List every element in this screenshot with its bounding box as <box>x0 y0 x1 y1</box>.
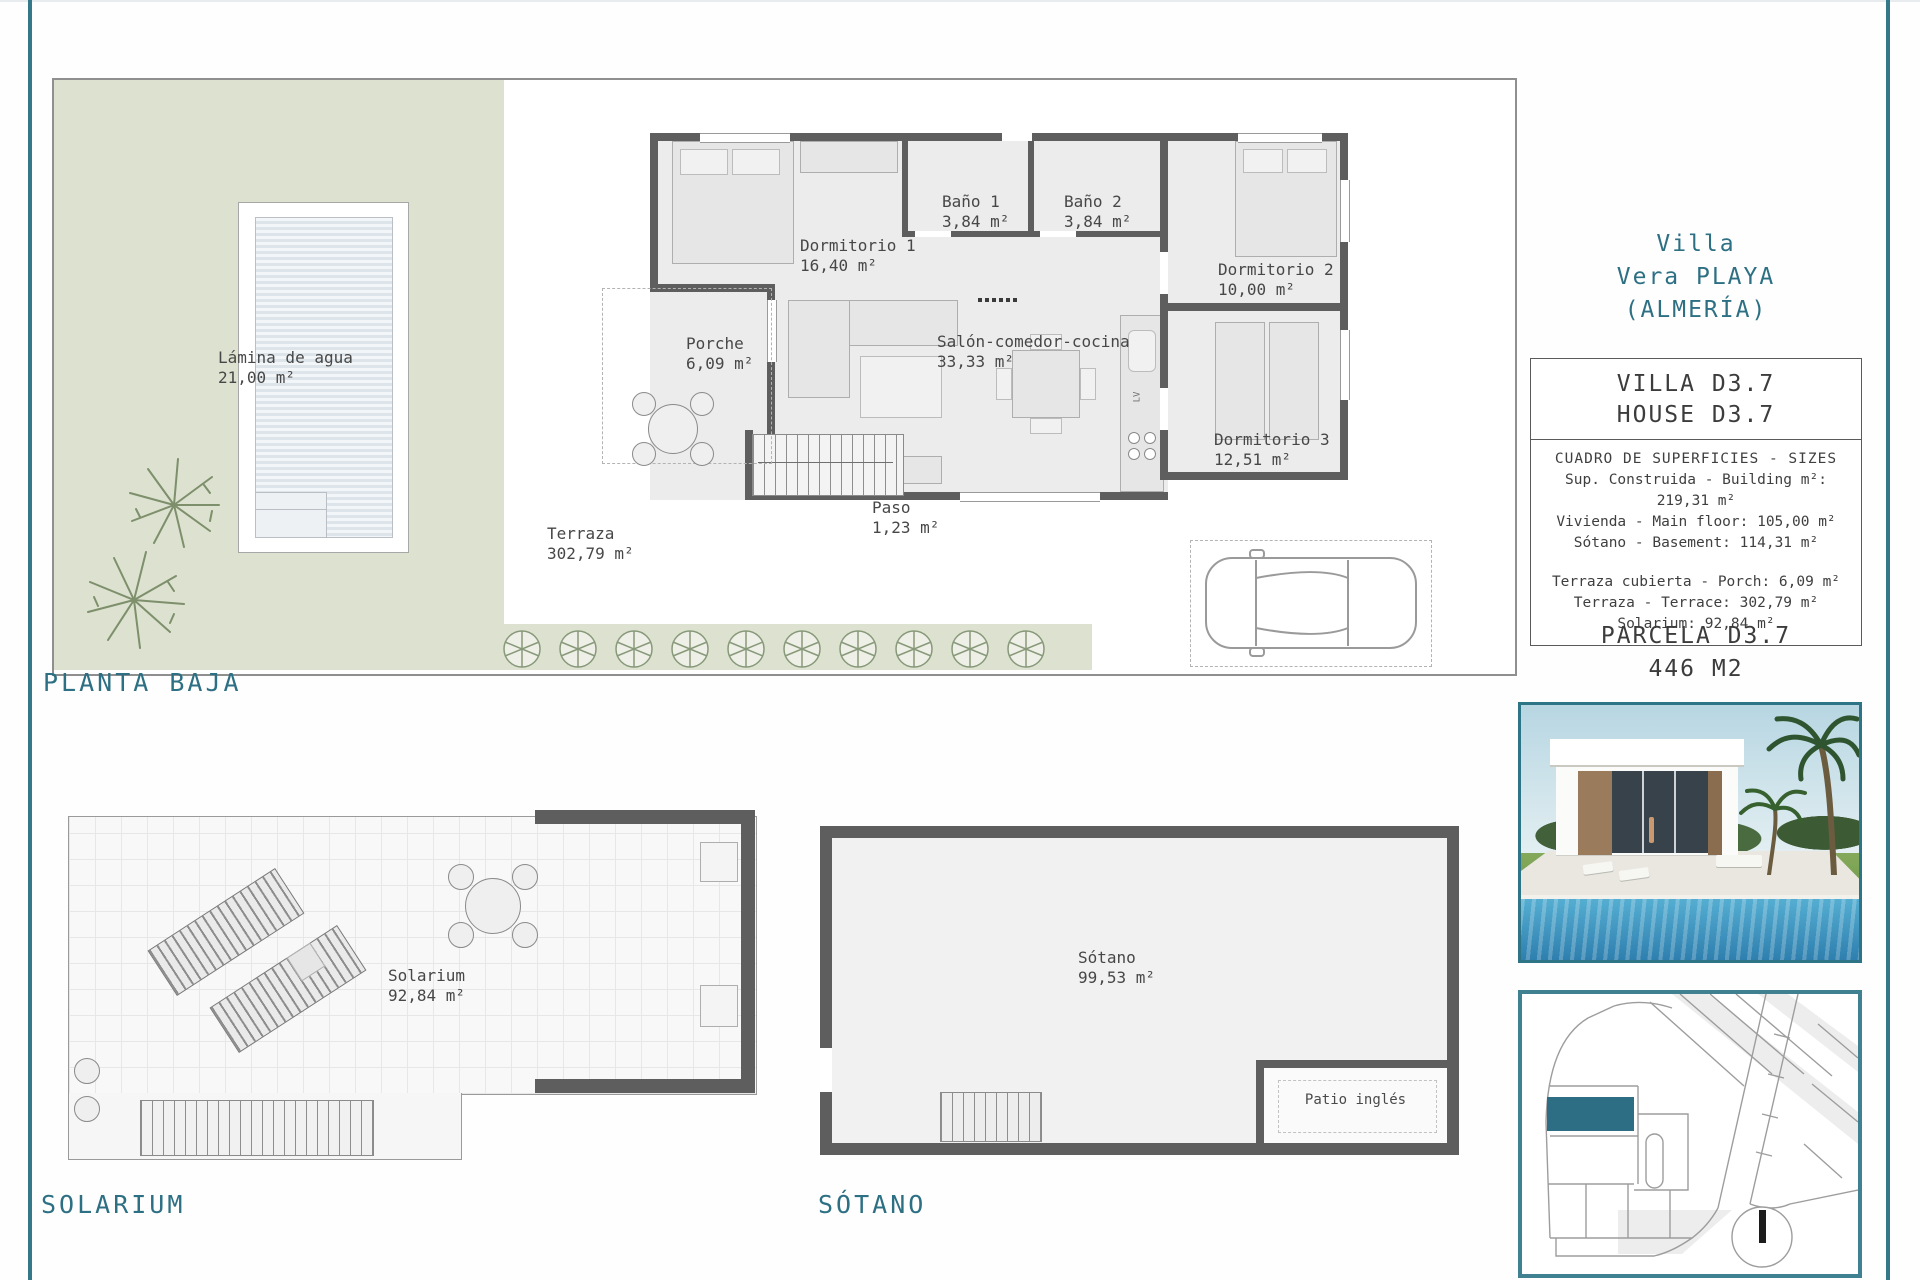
planta-baja-title: PLANTA BAJA <box>43 668 242 697</box>
surface-table-header: CUADRO DE SUPERFICIES - SIZES <box>1535 449 1857 470</box>
room-label-bano1: Baño 1 3,84 m² <box>942 192 1009 232</box>
solarium-chair <box>448 922 474 948</box>
pillow <box>680 149 728 175</box>
stairs <box>752 434 904 496</box>
room-label-paso: Paso 1,23 m² <box>872 498 939 538</box>
room-area: 3,84 m² <box>1064 212 1131 232</box>
room-area: 1,23 m² <box>872 518 939 538</box>
villa-title-line: Villa <box>1530 228 1862 261</box>
wall <box>1160 303 1348 311</box>
villa-title-line: (ALMERÍA) <box>1530 294 1862 327</box>
page-top-border <box>0 0 1920 2</box>
room-label-bano2: Baño 2 3,84 m² <box>1064 192 1131 232</box>
site-map <box>1518 990 1862 1278</box>
pillow <box>1243 149 1283 173</box>
photo-villa-roof <box>1550 739 1744 765</box>
photo-mullion <box>1674 771 1676 853</box>
room-name: Solarium <box>388 966 465 986</box>
room-area: 6,09 m² <box>686 354 753 374</box>
room-name: Terraza <box>547 524 634 544</box>
room-area: 33,33 m² <box>937 352 1130 372</box>
room-name: Dormitorio 3 <box>1214 430 1330 450</box>
room-label-lamina: Lámina de agua 21,00 m² <box>218 348 353 388</box>
threshold-dot <box>992 298 996 302</box>
bed-dormitorio3 <box>1269 322 1319 440</box>
hob-burner <box>1128 448 1140 460</box>
car-icon <box>1198 548 1424 658</box>
room-area: 10,00 m² <box>1218 280 1334 300</box>
window <box>960 492 1100 502</box>
window <box>1340 180 1350 242</box>
window <box>1340 330 1350 400</box>
threshold-dot <box>1013 298 1017 302</box>
chair <box>1080 368 1096 400</box>
room-label-sotano: Sótano 99,53 m² <box>1078 948 1155 988</box>
threshold-dot <box>985 298 989 302</box>
photo-wood-panel <box>1708 771 1722 855</box>
page-right-rule <box>1886 0 1890 1280</box>
room-area: 92,84 m² <box>388 986 465 1006</box>
room-name: Paso <box>872 498 939 518</box>
room-area: 16,40 m² <box>800 256 916 276</box>
page-left-rule <box>28 0 32 1280</box>
villa-title: Villa Vera PLAYA (ALMERÍA) <box>1530 228 1862 327</box>
porch-chair <box>690 392 714 416</box>
surface-table: CUADRO DE SUPERFICIES - SIZES Sup. Const… <box>1531 440 1861 645</box>
window <box>700 133 790 143</box>
threshold-dot <box>978 298 982 302</box>
info-box-titles: VILLA D3.7 HOUSE D3.7 <box>1531 359 1861 440</box>
solarium-cabinet <box>700 985 738 1027</box>
room-area: 12,51 m² <box>1214 450 1330 470</box>
room-label-dormitorio2: Dormitorio 2 10,00 m² <box>1218 260 1334 300</box>
wardrobe <box>800 141 898 173</box>
bed-dormitorio3 <box>1215 322 1265 440</box>
room-name: Porche <box>686 334 753 354</box>
solarium-detail <box>74 1058 100 1084</box>
porch-chair <box>690 442 714 466</box>
solarium-ramp <box>140 1100 374 1156</box>
door-gap <box>1160 388 1168 430</box>
surface-row: Terraza cubierta - Porch: 6,09 m² <box>1535 572 1857 593</box>
photo-mullion <box>1642 771 1644 853</box>
room-label-porche: Porche 6,09 m² <box>686 334 753 374</box>
wall <box>902 133 908 237</box>
info-title-line: HOUSE D3.7 <box>1531 400 1861 431</box>
surface-row: Terraza - Terrace: 302,79 m² <box>1535 593 1857 614</box>
wall <box>535 1079 755 1093</box>
chair <box>1030 418 1062 434</box>
room-area: 21,00 m² <box>218 368 353 388</box>
photo-palm-trees <box>1739 705 1859 875</box>
solarium-box <box>700 842 738 882</box>
room-label-dormitorio3: Dormitorio 3 12,51 m² <box>1214 430 1330 470</box>
solarium-chair <box>448 864 474 890</box>
hob-burner <box>1144 448 1156 460</box>
porch-chair <box>632 392 656 416</box>
photo-villa <box>1556 745 1738 855</box>
rug <box>860 356 942 418</box>
photo-glass-doors <box>1612 771 1708 853</box>
basement-stairs <box>940 1092 1042 1142</box>
hob-burner <box>1144 432 1156 444</box>
palm-plant-icon <box>79 450 259 680</box>
room-label-dormitorio1: Dormitorio 1 16,40 m² <box>800 236 916 276</box>
room-name: Dormitorio 2 <box>1218 260 1334 280</box>
solarium-title: SOLARIUM <box>41 1190 185 1219</box>
porch-table <box>648 404 698 454</box>
surface-row: Sótano - Basement: 114,31 m² <box>1535 533 1857 554</box>
surface-info-box: VILLA D3.7 HOUSE D3.7 CUADRO DE SUPERFIC… <box>1530 358 1862 646</box>
wall <box>741 810 755 1093</box>
hob-burner <box>1128 432 1140 444</box>
solarium-detail <box>74 1096 100 1122</box>
sotano-title: SÓTANO <box>818 1190 926 1219</box>
photo-pool <box>1521 899 1859 960</box>
room-area: 99,53 m² <box>1078 968 1155 988</box>
highlighted-plot <box>1547 1097 1634 1131</box>
patio-label: Patio inglés <box>1264 1092 1447 1108</box>
sofa-chaise <box>788 300 850 398</box>
room-name: Baño 1 <box>942 192 1009 212</box>
room-label-salon: Salón-comedor-cocina 33,33 m² <box>937 332 1130 372</box>
room-name: Lámina de agua <box>218 348 353 368</box>
chair <box>996 368 1012 400</box>
wall <box>535 810 755 824</box>
info-title-line: VILLA D3.7 <box>1531 369 1861 400</box>
porch-chair <box>632 442 656 466</box>
room-name: Dormitorio 1 <box>800 236 916 256</box>
window <box>1238 133 1322 143</box>
room-area: 3,84 m² <box>942 212 1009 232</box>
door-gap <box>820 1048 832 1092</box>
kitchen-appliance-label: LV <box>1132 392 1142 403</box>
patio-ingles: Patio inglés <box>1256 1060 1447 1143</box>
door-gap <box>1160 252 1168 294</box>
solarium-table <box>465 878 521 934</box>
parcela-line: PARCELA D3.7 <box>1530 620 1862 653</box>
wall <box>1028 133 1034 237</box>
threshold-dot <box>999 298 1003 302</box>
pool-step <box>255 508 327 538</box>
parcela-line: 446 M2 <box>1530 653 1862 686</box>
photo-person <box>1649 817 1654 843</box>
stairs-arrow <box>758 462 893 463</box>
entrance-door-gap <box>1002 133 1032 141</box>
room-label-terraza: Terraza 302,79 m² <box>547 524 634 564</box>
room-name: Sótano <box>1078 948 1155 968</box>
photo-wood-panel <box>1578 771 1612 855</box>
parcela-title: PARCELA D3.7 446 M2 <box>1530 620 1862 686</box>
pillow <box>732 149 780 175</box>
solarium-chair <box>512 922 538 948</box>
north-marker <box>1759 1210 1766 1243</box>
pillow <box>1287 149 1327 173</box>
room-name: Salón-comedor-cocina <box>937 332 1130 352</box>
room-name: Baño 2 <box>1064 192 1131 212</box>
room-label-solarium: Solarium 92,84 m² <box>388 966 465 1006</box>
bushes-icon <box>497 624 1097 674</box>
surface-row: Sup. Construida - Building m²: 219,31 m² <box>1535 470 1857 512</box>
wall <box>650 133 658 292</box>
floorplan-sheet: LV <box>0 0 1920 1280</box>
villa-title-line: Vera PLAYA <box>1530 261 1862 294</box>
pool-step <box>255 492 327 510</box>
solarium-chair <box>512 864 538 890</box>
villa-render-photo <box>1518 702 1862 963</box>
site-map-drawing <box>1522 994 1858 1274</box>
surface-row: Vivienda - Main floor: 105,00 m² <box>1535 512 1857 533</box>
room-area: 302,79 m² <box>547 544 634 564</box>
threshold-dot <box>1006 298 1010 302</box>
sink <box>1128 330 1156 372</box>
wall <box>1160 472 1348 480</box>
table-spacer <box>1535 554 1857 572</box>
